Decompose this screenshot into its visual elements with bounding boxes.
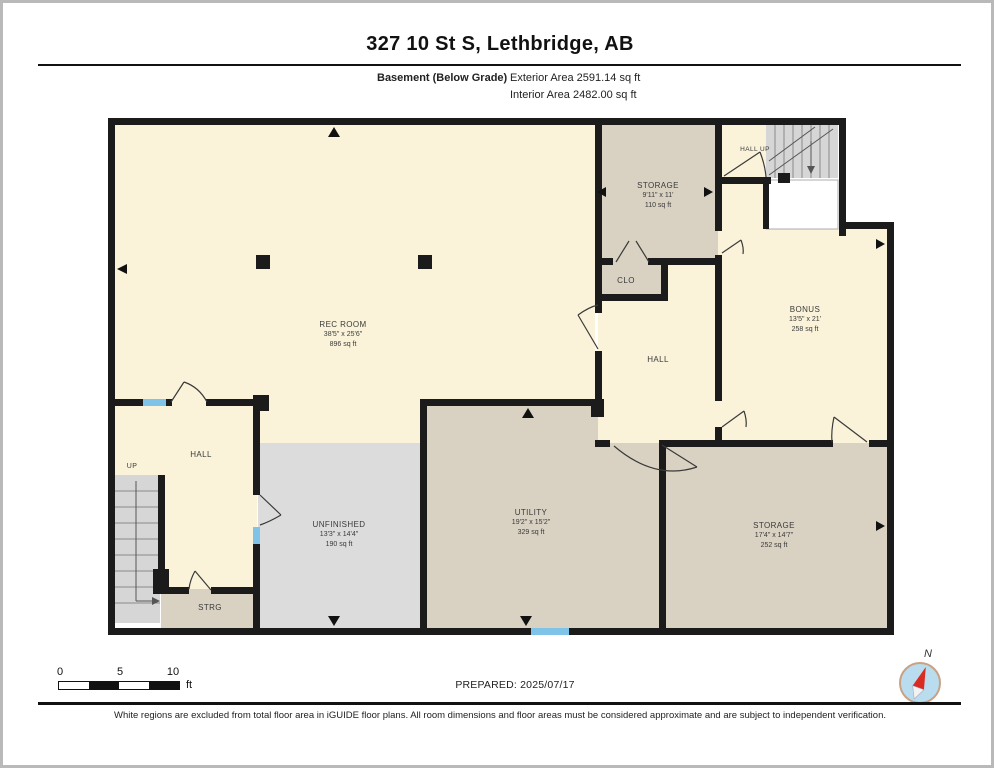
room-dims: 13'3" x 14'4" <box>313 530 366 540</box>
room-dims: 9'11" x 11' <box>637 191 679 201</box>
room-label-utility: UTILITY 19'2" x 15'2" 329 sq ft <box>512 508 550 538</box>
room-area: 252 sq ft <box>753 541 795 551</box>
window <box>143 399 166 406</box>
room-area: 190 sq ft <box>313 540 366 550</box>
room-name: HALL UP <box>740 145 770 155</box>
room-name: HALL <box>647 355 669 365</box>
room-name: STORAGE <box>637 181 679 191</box>
room-rec-ext-fill <box>253 399 423 446</box>
room-dims: 13'5" x 21' <box>789 315 821 325</box>
room-label-storage-bottom: STORAGE 17'4" x 14'7" 252 sq ft <box>753 521 795 551</box>
room-dims: 19'2" x 15'2" <box>512 518 550 528</box>
window <box>531 628 569 635</box>
room-label-hall-mid: HALL <box>647 355 669 365</box>
room-label-unfinished: UNFINISHED 13'3" x 14'4" 190 sq ft <box>313 520 366 550</box>
column-post <box>256 255 270 269</box>
scale-tick-5: 5 <box>117 666 123 678</box>
room-name: UP <box>127 462 138 472</box>
column-post <box>418 255 432 269</box>
room-label-bonus: BONUS 13'5" x 21' 258 sq ft <box>789 305 821 335</box>
disclaimer-text: White regions are excluded from total fl… <box>3 710 994 721</box>
room-dims: 38'5" x 25'6" <box>319 330 366 340</box>
room-utility-fill2 <box>598 443 662 630</box>
room-area: 329 sq ft <box>512 528 550 538</box>
stairs-top-right <box>766 125 838 178</box>
room-area: 110 sq ft <box>637 201 679 211</box>
room-label-up: UP <box>127 462 138 472</box>
compass-north-label: N <box>924 648 932 660</box>
room-rec-fill <box>115 125 595 401</box>
scale-tick-10: 10 <box>167 666 179 678</box>
room-name: HALL <box>190 450 212 460</box>
room-bonus-fill2 <box>766 229 887 443</box>
stairs-bottom-left <box>115 475 160 623</box>
room-name: REC ROOM <box>319 320 366 330</box>
room-label-strg: STRG <box>198 603 222 613</box>
scale-bar-segment <box>89 682 119 689</box>
room-label-storage-top: STORAGE 9'11" x 11' 110 sq ft <box>637 181 679 211</box>
scale-bar-segment <box>149 682 179 689</box>
room-utility-fill <box>423 403 598 630</box>
room-label-rec: REC ROOM 38'5" x 25'6" 896 sq ft <box>319 320 366 350</box>
room-area: 258 sq ft <box>789 325 821 335</box>
scale-bar-ticks: 0 5 10 <box>43 666 203 678</box>
floorplan-page: 327 10 St S, Lethbridge, AB Basement (Be… <box>0 0 994 768</box>
stair-void <box>766 180 838 229</box>
room-bonus-fill1 <box>718 180 768 443</box>
room-name: CLO <box>617 276 635 286</box>
scale-unit-label: ft <box>186 679 192 691</box>
room-label-hall-left: HALL <box>190 450 212 460</box>
room-name: UTILITY <box>512 508 550 518</box>
room-label-hall-up: HALL UP <box>740 145 770 155</box>
window <box>253 527 260 544</box>
room-name: STORAGE <box>753 521 795 531</box>
prepared-date: PREPARED: 2025/07/17 <box>455 679 574 691</box>
room-name: UNFINISHED <box>313 520 366 530</box>
room-fills <box>115 125 887 630</box>
room-name: STRG <box>198 603 222 613</box>
room-dims: 17'4" x 14'7" <box>753 531 795 541</box>
footer-divider <box>38 702 961 705</box>
compass-icon <box>900 663 940 703</box>
scale-bar <box>58 681 180 690</box>
room-label-clo: CLO <box>617 276 635 286</box>
scale-tick-0: 0 <box>57 666 63 678</box>
room-name: BONUS <box>789 305 821 315</box>
floorplan-graphics <box>3 3 994 768</box>
room-area: 896 sq ft <box>319 340 366 350</box>
